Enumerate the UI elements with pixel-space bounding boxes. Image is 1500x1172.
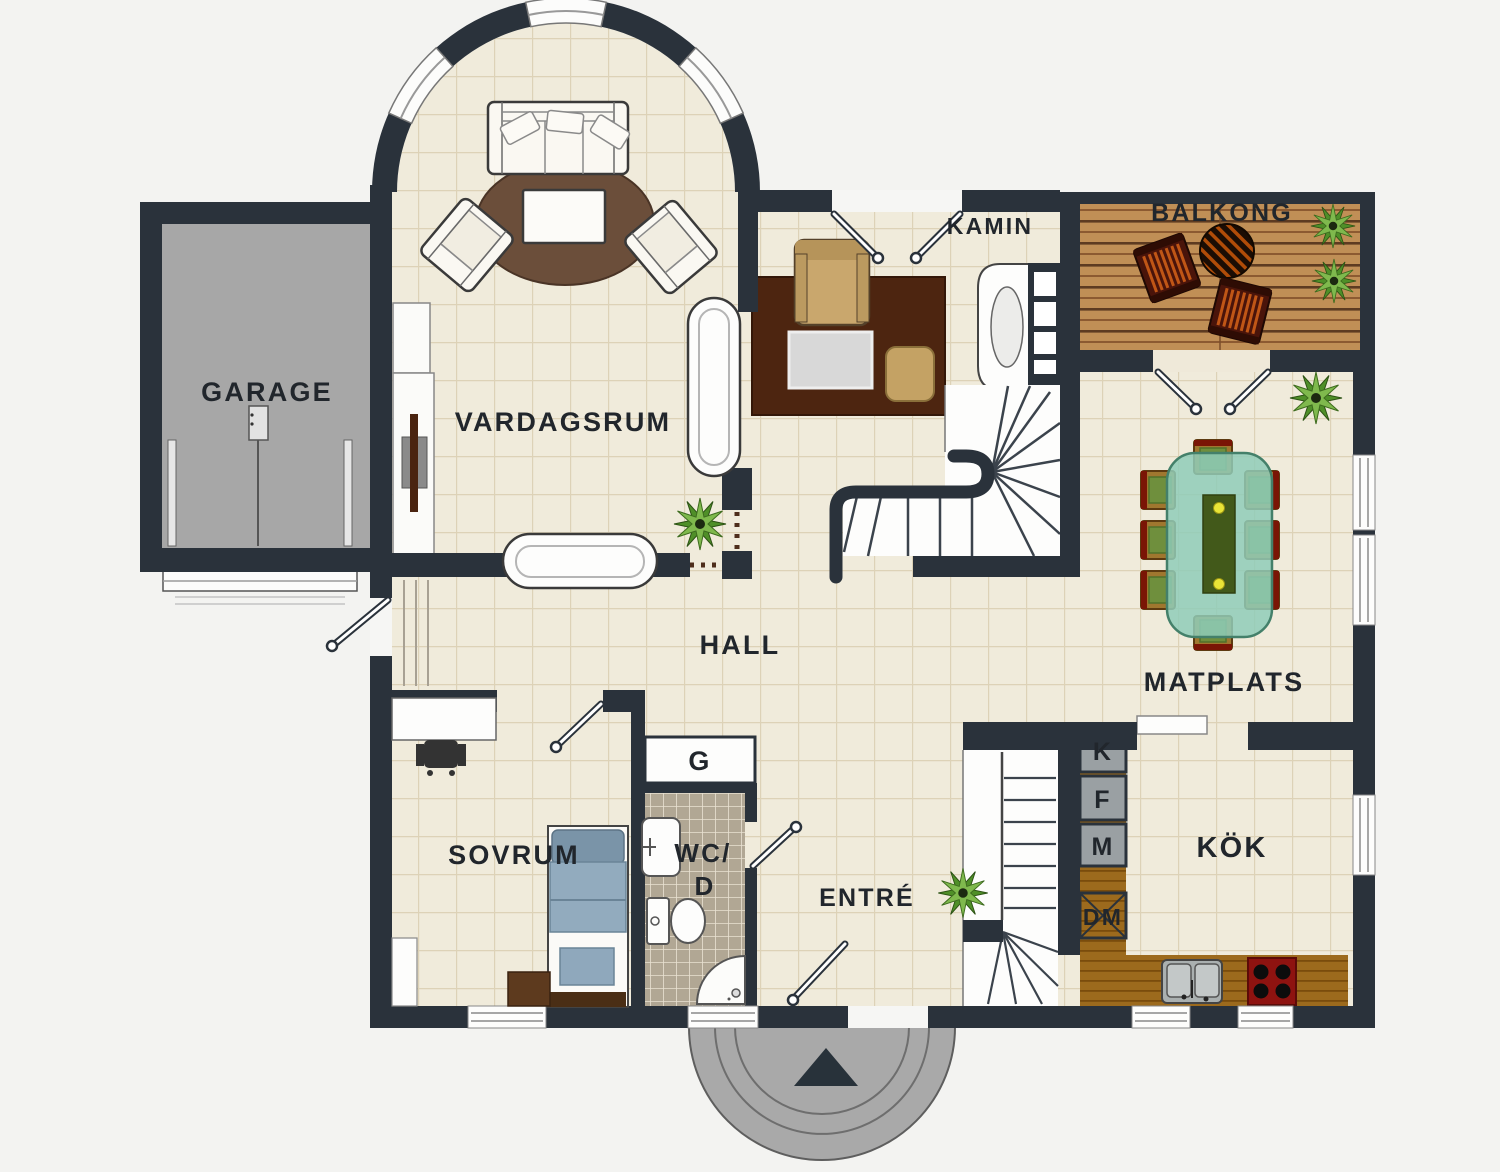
- pillow: [546, 110, 584, 134]
- garage-wall-top: [140, 202, 380, 224]
- side-table: [789, 332, 872, 388]
- corner-window: [392, 938, 417, 1006]
- floor-plan-page: GARAGE VARDAGSRUM KAMIN BALKONG HALL MAT…: [0, 0, 1500, 1172]
- wall-left-lower: [370, 656, 392, 1028]
- balcony-door-opening: [1153, 350, 1270, 372]
- wall-right-mullion: [1353, 530, 1375, 535]
- cased-opening-east: [688, 298, 740, 476]
- window: [1353, 795, 1375, 875]
- desk: [392, 698, 496, 740]
- label-entry: ENTRÉ: [819, 883, 915, 912]
- label-kitchen: KÖK: [1196, 831, 1267, 864]
- sofa: [488, 102, 631, 174]
- wall-right-3: [1353, 875, 1375, 1028]
- wall-balcony-bottom-left: [1060, 350, 1153, 372]
- wall-right-1: [1353, 350, 1375, 455]
- tv: [410, 414, 418, 512]
- coffee-table: [523, 190, 605, 243]
- front-door-opening: [848, 1006, 928, 1028]
- window: [1353, 455, 1375, 530]
- garage-wall-bottom: [140, 548, 382, 572]
- wall-bottom-4: [928, 1006, 1132, 1028]
- room-garage: [162, 222, 370, 604]
- wall-bathroom-right-2: [745, 868, 757, 1006]
- wall-bathroom-right-1: [745, 793, 757, 822]
- wall-bottom-5: [1190, 1006, 1238, 1028]
- terrace-door-opening: [832, 190, 962, 212]
- stairs-lower: [963, 750, 1058, 1006]
- bed-base: [550, 992, 626, 1007]
- floor-plan-svg: GARAGE VARDAGSRUM KAMIN BALKONG HALL MAT…: [0, 0, 1500, 1172]
- window: [1132, 1006, 1190, 1028]
- wall-corner-post: [722, 551, 752, 579]
- kitchen-sink: [1162, 960, 1222, 1003]
- label-dining: MATPLATS: [1144, 667, 1305, 697]
- label-garage: GARAGE: [201, 377, 333, 407]
- wall-top-b: [962, 190, 1060, 212]
- label-appliance-k: K: [1093, 738, 1113, 766]
- label-bath-2: D: [695, 871, 716, 901]
- label-living-room: VARDAGSRUM: [455, 407, 672, 437]
- duvet: [550, 862, 626, 932]
- label-fireplace: KAMIN: [947, 213, 1033, 239]
- wall-living-east: [738, 185, 758, 312]
- candle: [1214, 579, 1225, 590]
- tv-bench: [393, 303, 434, 554]
- label-closet: G: [688, 746, 711, 776]
- balcony-table: [1200, 224, 1254, 278]
- lounge-armchair: [795, 240, 869, 325]
- wall-bottom-3: [758, 1006, 848, 1028]
- garage-wall-left: [140, 202, 162, 570]
- cased-opening-south: [503, 534, 657, 588]
- wall-bottom-2: [546, 1006, 688, 1028]
- wall-left-upper: [370, 185, 392, 598]
- wall-balcony-left: [1060, 204, 1080, 577]
- fireplace: [978, 263, 1062, 390]
- window: [1353, 535, 1375, 625]
- label-dishwasher: DM: [1083, 904, 1123, 930]
- foot-bench: [560, 948, 614, 985]
- garage-door-rail: [344, 440, 352, 546]
- label-appliance-f: F: [1094, 786, 1111, 814]
- label-balcony: BALKONG: [1151, 199, 1293, 227]
- stair-wall-stub: [963, 920, 1003, 942]
- wall-stairs-kitchen: [1058, 750, 1080, 955]
- label-bedroom: SOVRUM: [448, 840, 580, 870]
- label-appliance-m: M: [1091, 833, 1114, 861]
- kitchen-hatch: [1137, 716, 1207, 734]
- window: [1238, 1006, 1293, 1028]
- label-bath-1: WC/: [674, 838, 731, 868]
- toilet: [647, 898, 705, 944]
- candle: [1214, 503, 1225, 514]
- wall-kitchen-top-right: [1248, 722, 1353, 750]
- window: [468, 1006, 546, 1028]
- nightstand: [508, 972, 550, 1006]
- wall-right-2: [1353, 625, 1375, 795]
- wall-bottom-6: [1293, 1006, 1375, 1028]
- wall-top-a: [752, 190, 832, 212]
- window: [688, 1006, 758, 1028]
- garage-door-rail: [168, 440, 176, 546]
- wall-bottom-1: [370, 1006, 468, 1028]
- pouf: [886, 347, 934, 401]
- balcony-wall-right: [1360, 192, 1375, 352]
- stove: [1248, 958, 1296, 1005]
- wall-living-south: [370, 553, 520, 577]
- wall-stairs-south: [913, 556, 1080, 577]
- label-hall: HALL: [700, 630, 781, 660]
